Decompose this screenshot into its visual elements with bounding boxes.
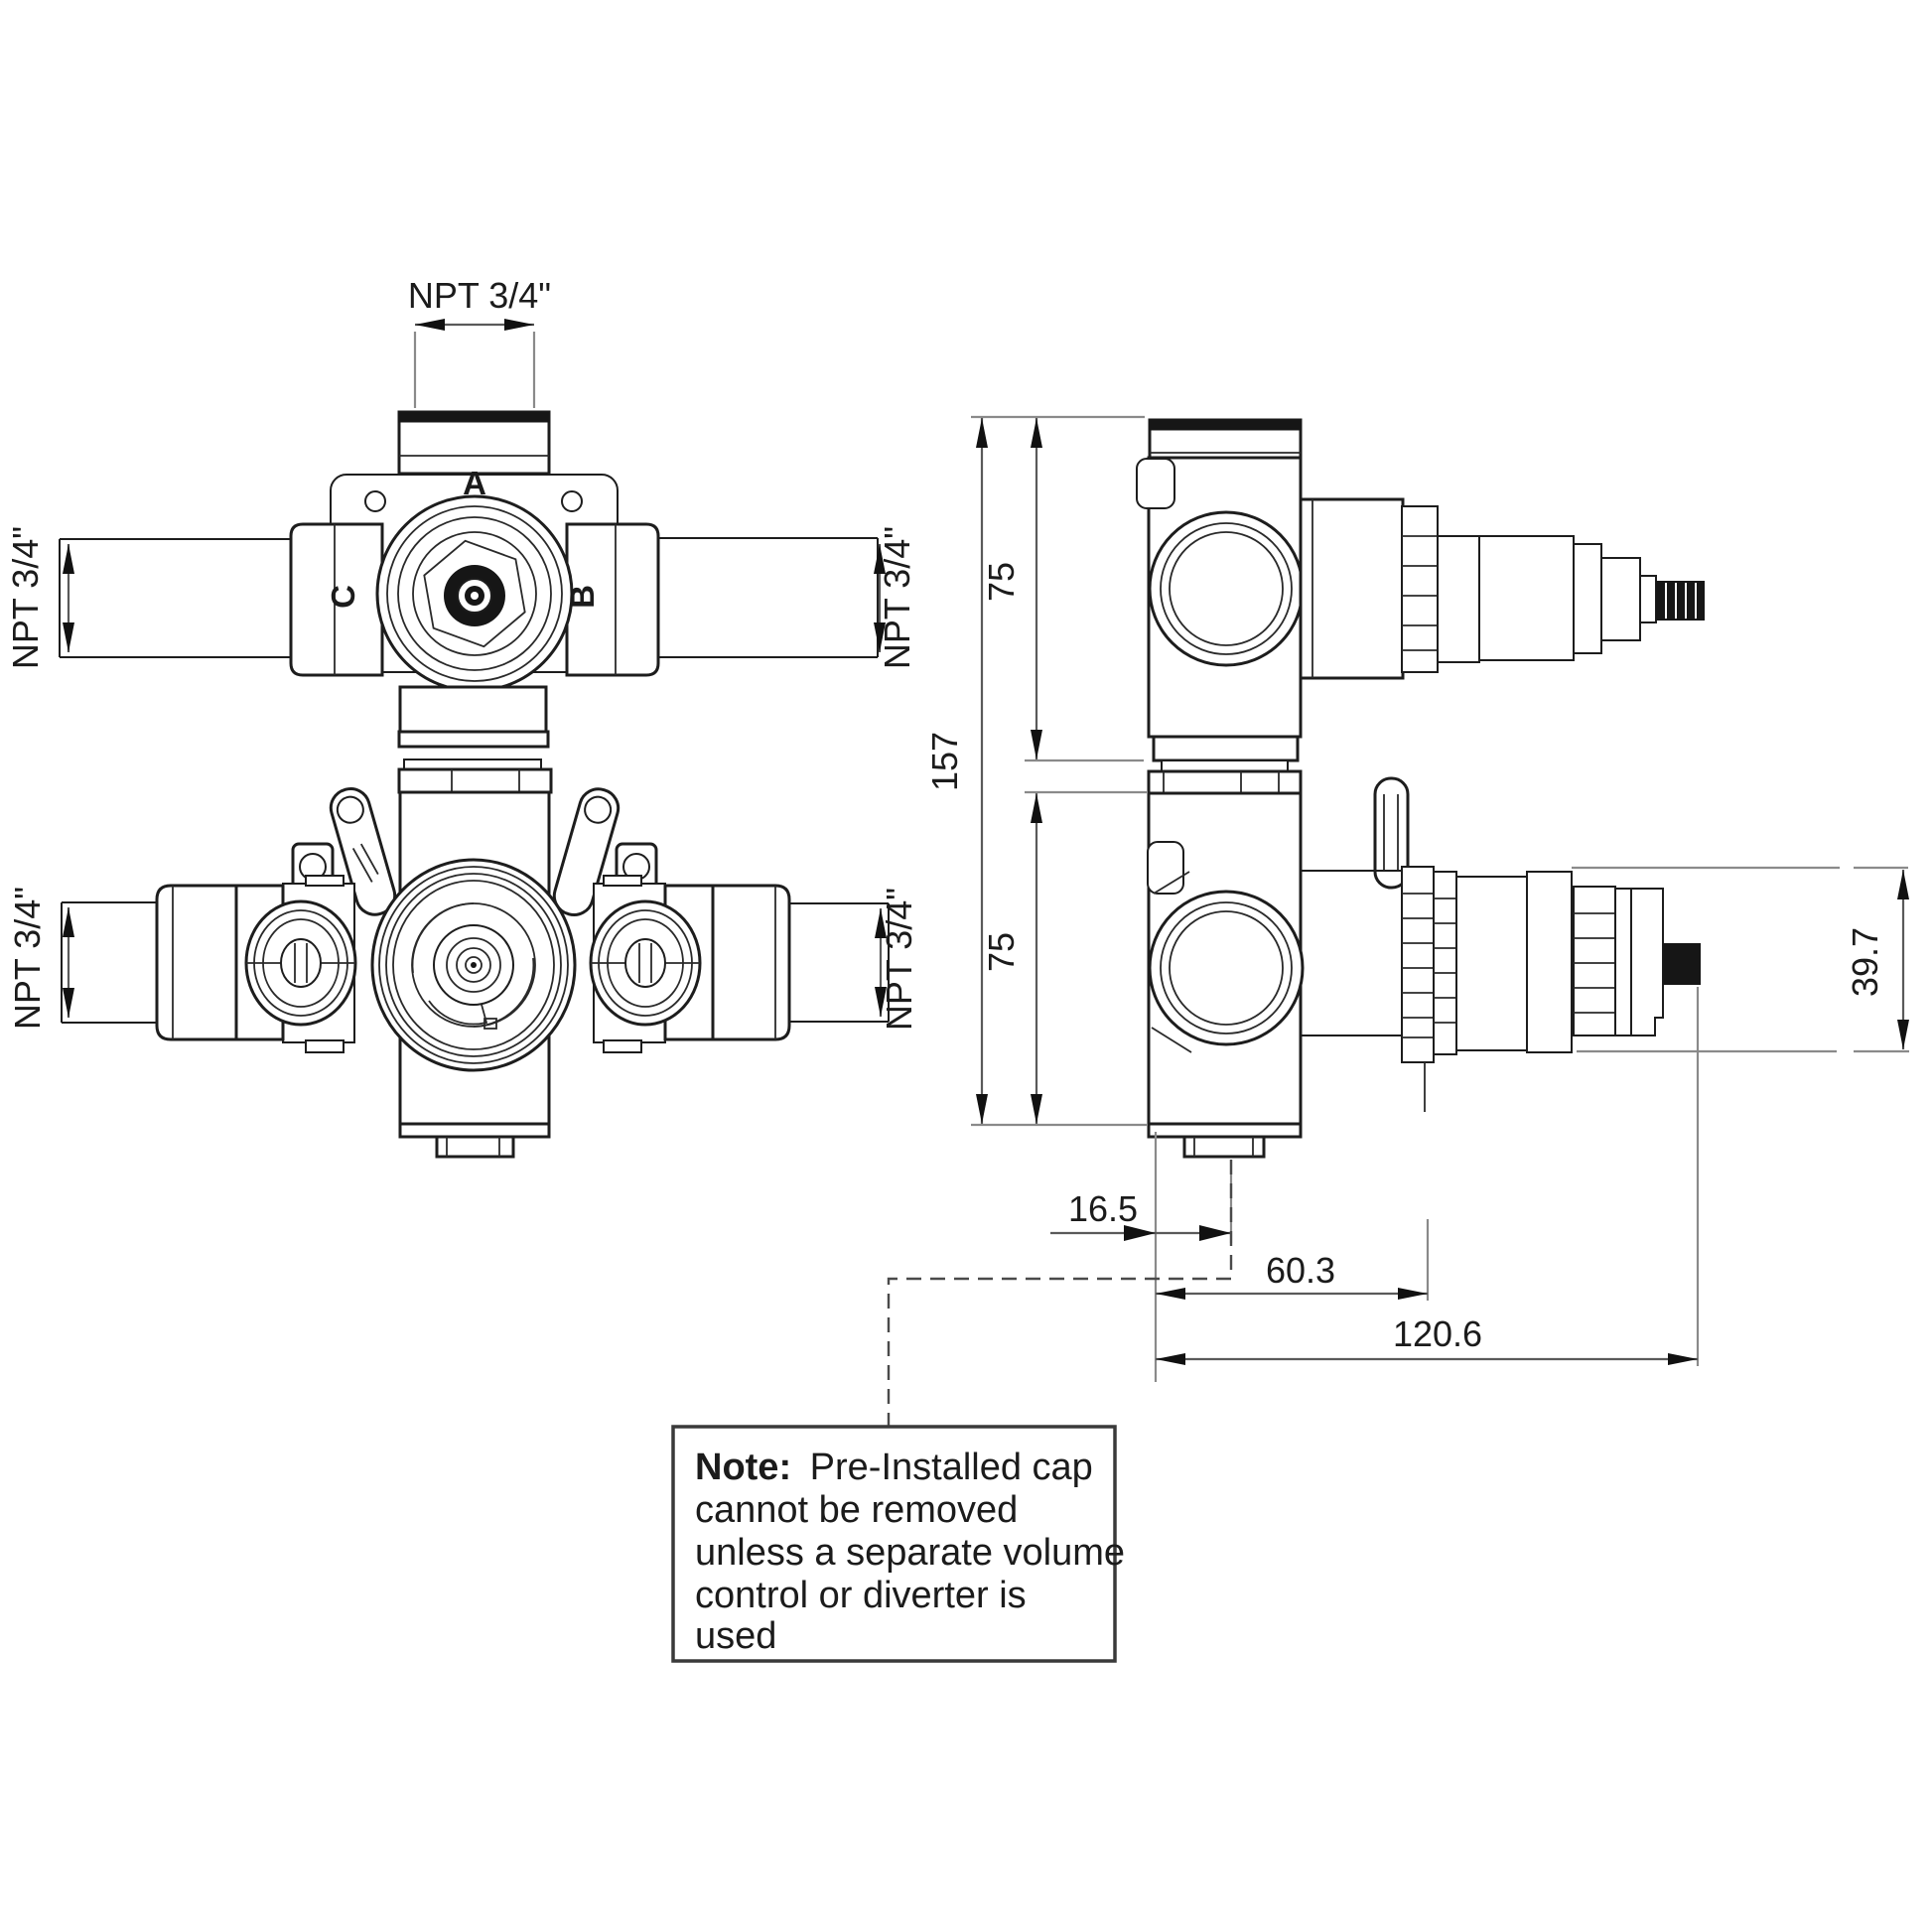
technical-drawing-page: NPT 3/4" NPT 3/4" NPT 3/4" — [0, 0, 1932, 1932]
body-depth-dim: 60.3 — [1266, 1250, 1335, 1291]
note-label: Note: — [695, 1447, 791, 1488]
overall-depth-dim: 120.6 — [1393, 1313, 1482, 1354]
npt-left-lower-label: NPT 3/4" — [7, 887, 48, 1030]
note-line-4: control or diverter is — [695, 1575, 1027, 1616]
note-box: Note: Pre-Installed cap cannot be remove… — [673, 1427, 1125, 1661]
npt-top-dim-label: NPT 3/4" — [408, 275, 551, 316]
npt-right-lower-label: NPT 3/4" — [879, 888, 919, 1031]
upper-port-height-dim: 75 — [981, 562, 1022, 602]
front-view-lower-valve: NPT 3/4" NPT 3/4" — [7, 784, 919, 1157]
port-c-label: C — [325, 585, 361, 609]
side-view-lower-valve — [1148, 778, 1701, 1157]
port-a-label: A — [463, 465, 486, 501]
port-b-label: B — [564, 585, 601, 609]
lower-port-height-dim: 75 — [981, 932, 1022, 972]
note-line-1: Note: Pre-Installed cap — [695, 1447, 1093, 1488]
npt-right-upper-label: NPT 3/4" — [877, 526, 917, 669]
outlet-offset-dim: 16.5 — [1068, 1188, 1138, 1229]
cartridge-height-dim: 39.7 — [1845, 927, 1885, 997]
note-line-2: cannot be removed — [695, 1489, 1018, 1531]
overall-height-dim: 157 — [924, 732, 965, 791]
note-line-3: unless a separate volume — [695, 1532, 1125, 1574]
front-view-upper-valve: NPT 3/4" NPT 3/4" NPT 3/4" — [5, 275, 917, 691]
note-line-5: used — [695, 1615, 776, 1657]
valve-drawing-svg: NPT 3/4" NPT 3/4" NPT 3/4" — [0, 0, 1932, 1932]
side-view-upper-valve — [971, 417, 1705, 793]
npt-left-upper-label: NPT 3/4" — [5, 526, 46, 669]
front-view-connector — [399, 687, 551, 792]
